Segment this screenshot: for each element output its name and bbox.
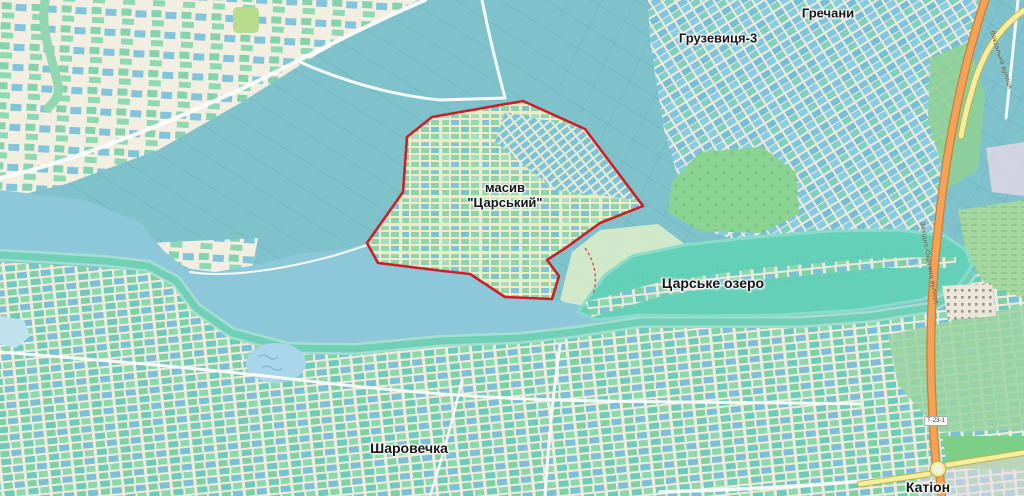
building-cluster: [942, 283, 996, 320]
map-canvas: [0, 0, 1024, 496]
green-square-pond: [233, 7, 259, 33]
map-viewport[interactable]: Гречани Грузевиця-3 масив "Царський" Цар…: [0, 0, 1024, 496]
commercial-zone: [986, 142, 1024, 196]
